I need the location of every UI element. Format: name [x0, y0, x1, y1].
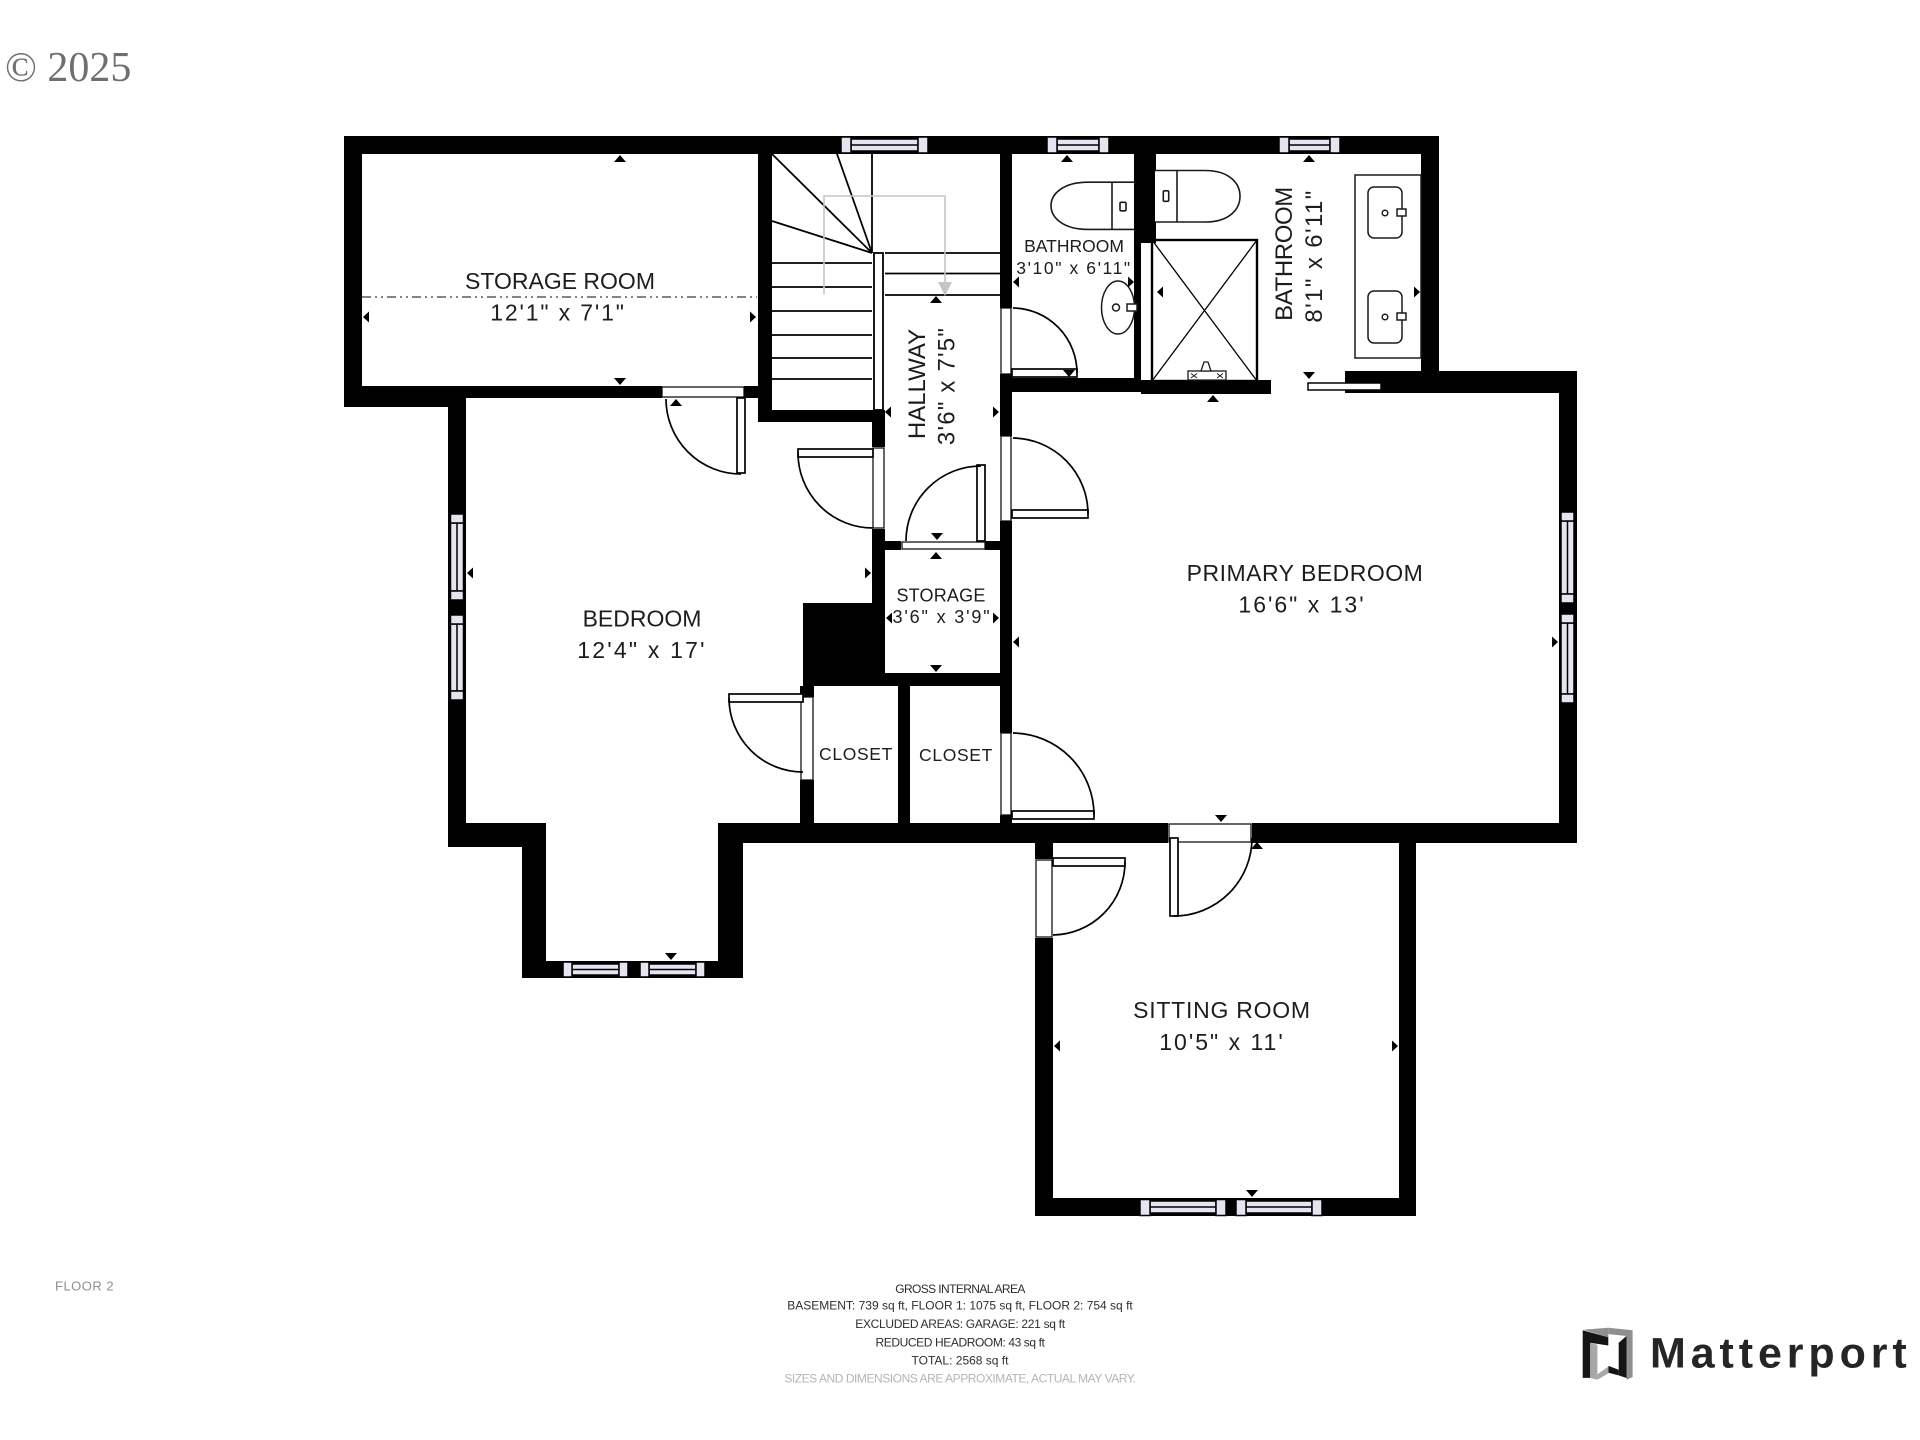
svg-text:BATHROOM: BATHROOM	[1271, 187, 1298, 321]
svg-text:Matterport: Matterport	[1650, 1330, 1912, 1378]
svg-text:12'4" x 17': 12'4" x 17'	[577, 637, 706, 663]
svg-text:3'6" x 7'5": 3'6" x 7'5"	[934, 327, 961, 445]
svg-text:PRIMARY BEDROOM: PRIMARY BEDROOM	[1187, 560, 1424, 586]
svg-text:SITTING ROOM: SITTING ROOM	[1133, 997, 1311, 1023]
svg-text:STORAGE: STORAGE	[896, 586, 985, 606]
svg-text:8'1" x 6'11": 8'1" x 6'11"	[1301, 189, 1328, 322]
svg-text:STORAGE ROOM: STORAGE ROOM	[465, 268, 655, 294]
svg-text:CLOSET: CLOSET	[819, 744, 893, 764]
svg-text:REDUCED HEADROOM: 43 sq ft: REDUCED HEADROOM: 43 sq ft	[876, 1336, 1046, 1350]
svg-text:© 2025: © 2025	[5, 45, 131, 91]
svg-text:10'5" x 11': 10'5" x 11'	[1159, 1029, 1284, 1055]
svg-text:TOTAL: 2568 sq ft: TOTAL: 2568 sq ft	[912, 1354, 1010, 1368]
svg-text:EXCLUDED AREAS: GARAGE: 221 sq: EXCLUDED AREAS: GARAGE: 221 sq ft	[855, 1317, 1065, 1331]
svg-text:SIZES AND DIMENSIONS ARE APPRO: SIZES AND DIMENSIONS ARE APPROXIMATE, AC…	[784, 1372, 1135, 1386]
svg-text:BEDROOM: BEDROOM	[583, 606, 702, 632]
svg-text:CLOSET: CLOSET	[919, 745, 993, 765]
svg-text:BASEMENT: 739 sq ft, FLOOR 1:: BASEMENT: 739 sq ft, FLOOR 1: 1075 sq ft…	[787, 1299, 1133, 1313]
svg-text:12'1" x 7'1": 12'1" x 7'1"	[490, 300, 626, 326]
svg-text:GROSS INTERNAL AREA: GROSS INTERNAL AREA	[895, 1282, 1025, 1296]
svg-text:HALLWAY: HALLWAY	[904, 329, 931, 439]
svg-text:FLOOR 2: FLOOR 2	[55, 1279, 114, 1294]
svg-text:3'6" x 3'9": 3'6" x 3'9"	[892, 607, 991, 627]
svg-text:3'10" x 6'11": 3'10" x 6'11"	[1016, 258, 1131, 278]
svg-text:BATHROOM: BATHROOM	[1024, 236, 1124, 256]
svg-text:16'6" x 13': 16'6" x 13'	[1238, 592, 1365, 618]
